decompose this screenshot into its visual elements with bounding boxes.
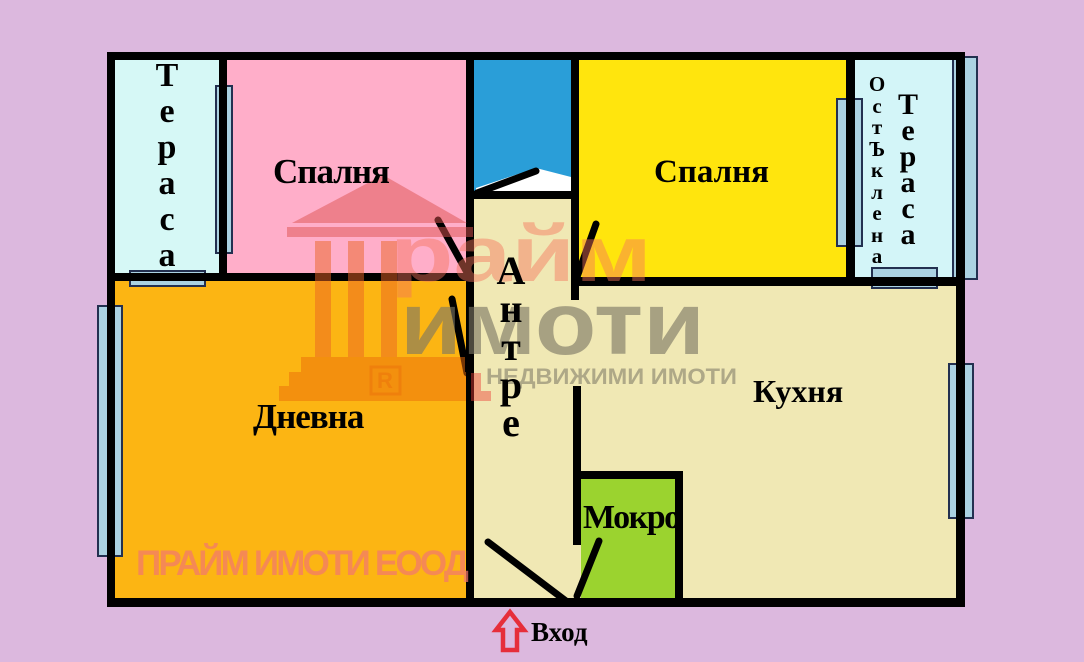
svg-text:имоти: имоти <box>400 273 705 373</box>
svg-text:ПРАЙМ ИМОТИ ЕООД: ПРАЙМ ИМОТИ ЕООД <box>136 543 469 583</box>
svg-text:R: R <box>377 368 393 393</box>
